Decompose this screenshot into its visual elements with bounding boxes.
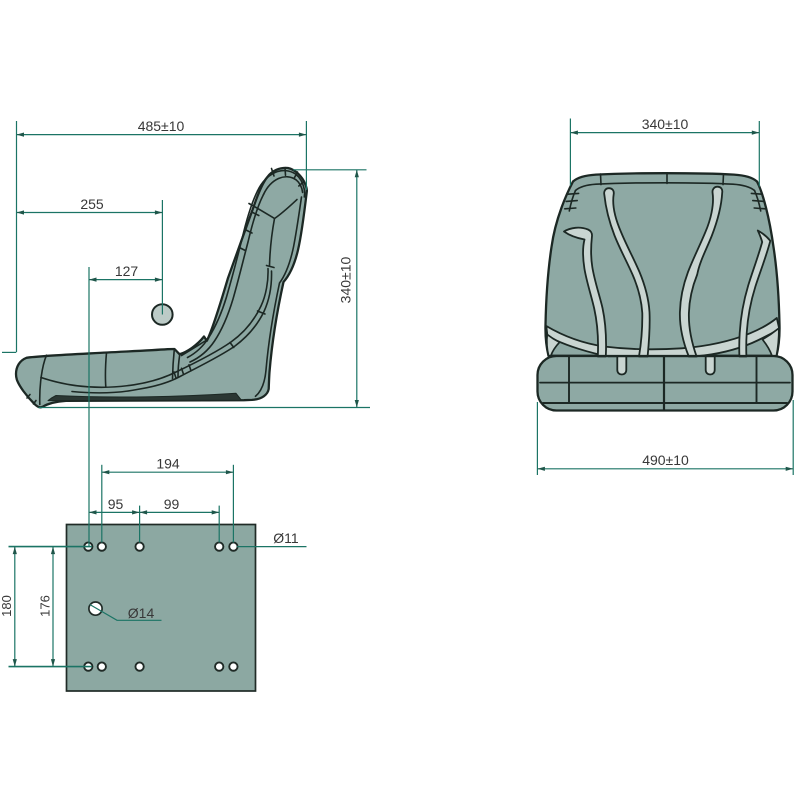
svg-text:340±10: 340±10 <box>642 116 689 132</box>
svg-text:Ø11: Ø11 <box>273 530 299 546</box>
svg-text:95: 95 <box>108 496 124 512</box>
svg-text:Ø14: Ø14 <box>128 605 155 621</box>
svg-text:255: 255 <box>80 196 104 212</box>
svg-text:490±10: 490±10 <box>642 452 689 468</box>
svg-text:176: 176 <box>37 595 52 617</box>
svg-text:180: 180 <box>0 595 14 617</box>
svg-text:485±10: 485±10 <box>138 118 185 134</box>
svg-text:99: 99 <box>164 496 180 512</box>
svg-text:340±10: 340±10 <box>338 256 354 303</box>
svg-text:127: 127 <box>115 263 139 279</box>
svg-text:194: 194 <box>156 456 180 472</box>
